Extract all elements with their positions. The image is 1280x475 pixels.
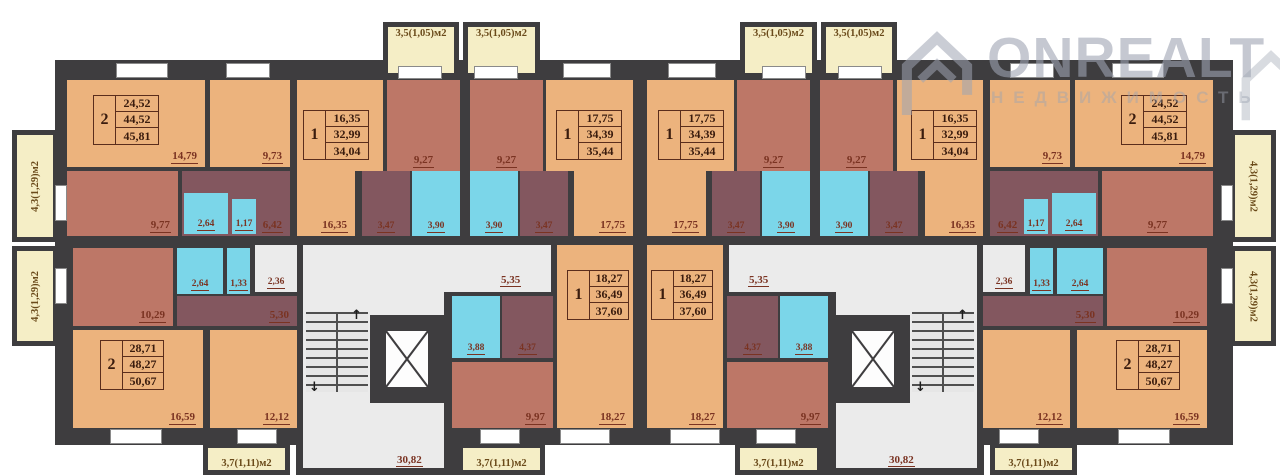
window (1118, 429, 1170, 444)
area-value: 44,52 (116, 112, 158, 128)
apt2-bottom-right-bathroom: 2,64 (1057, 248, 1103, 294)
area-value: 34,39 (579, 127, 621, 143)
room-area-label: 9,73 (1042, 150, 1063, 164)
apt2-bottom-left-bathroom: 2,64 (177, 248, 223, 294)
apt1b-left-hall: 3,47 (520, 171, 568, 236)
apt1c-left-hall: 4,37 (502, 296, 553, 358)
apartment-type: 1 (304, 111, 326, 159)
apt1a-right-kitchen: 9,27 (820, 80, 893, 171)
window (560, 429, 610, 444)
stair-divider (942, 312, 944, 392)
apt2-top-left-wc: 1,17 (232, 199, 256, 234)
apt2-top-right-kitchen: 9,77 (1102, 171, 1213, 236)
apt1c-right-kitchen: 9,97 (727, 362, 828, 428)
apt1b-left-kitchen: 9,27 (470, 80, 543, 171)
room-area-label: 9,73 (262, 150, 283, 164)
apartment-type: 1 (659, 111, 681, 159)
room-area-label: 18,27 (689, 411, 716, 425)
balcony-right-1: 4,3(1,29)м2 (1230, 130, 1276, 242)
apt1c-right-hall: 4,37 (727, 296, 778, 358)
apartment-type: 2 (101, 341, 123, 389)
apartment-type: 1 (912, 111, 934, 159)
corridor-area-label-right: 5,35 (748, 270, 769, 288)
apt2-top-left-bedroom: 9,73 (210, 80, 290, 167)
room-area-label: 3,90 (835, 221, 854, 233)
apt1b-right-bathroom: 3,90 (762, 171, 810, 236)
room-area-label: 2,64 (1071, 279, 1090, 291)
room-area-label: 9,27 (763, 154, 784, 168)
window (756, 429, 796, 444)
apt2-top-right-bedroom: 9,73 (990, 80, 1070, 167)
apartment-type: 1 (557, 111, 579, 159)
balcony-left-2: 4,3(1,29)м2 (12, 246, 58, 346)
window (668, 63, 716, 78)
area-value: 35,44 (579, 143, 621, 159)
apt1a-left-bathroom: 3,90 (412, 171, 460, 236)
area-value: 18,27 (590, 271, 628, 287)
room-area-label: 9,77 (150, 219, 171, 233)
room-area-label: 5,30 (269, 309, 290, 323)
room-area-label: 2,64 (197, 219, 216, 231)
area-value: 48,27 (1139, 357, 1179, 373)
apt2-top-right-wc: 1,17 (1024, 199, 1048, 234)
room-area-label: 3,90 (427, 221, 446, 233)
elevator-x-icon (852, 331, 894, 387)
watermark-house-icon-partial (1236, 46, 1280, 126)
staircase-right: ↓ ↑ (912, 312, 974, 392)
apt1a-right-area-table: 1 16,35 32,99 34,04 (911, 110, 977, 160)
room-area-label: 16,59 (1173, 411, 1200, 425)
area-value: 44,52 (1144, 112, 1186, 128)
lobby-area-label-left: 30,82 (396, 450, 423, 468)
room-area-label: 9,97 (800, 411, 821, 425)
balcony-bottom-4: 3,7(1,11)м2 (990, 443, 1077, 475)
apt1b-right-kitchen: 9,27 (737, 80, 810, 171)
room-area-label: 2,64 (191, 279, 210, 291)
room-area-label: 1,17 (1027, 219, 1046, 231)
area-value: 28,71 (1139, 341, 1179, 357)
room-area-label: 3,90 (485, 221, 504, 233)
apt1a-right-hall: 3,47 (870, 171, 918, 236)
balcony-door (838, 66, 882, 79)
area-value: 36,49 (590, 287, 628, 303)
room-area-label: 3,88 (795, 343, 814, 355)
area-value: 34,04 (934, 143, 976, 159)
room-area-label: 14,79 (171, 150, 198, 164)
area-value: 32,99 (326, 127, 368, 143)
room-area-label: 2,64 (1065, 219, 1084, 231)
area-value: 16,35 (326, 111, 368, 127)
window (999, 429, 1039, 444)
apt1b-right-hall: 3,47 (712, 171, 760, 236)
apt2-top-right-area-table: 2 24,52 44,52 45,81 (1121, 95, 1187, 145)
apt2-bottom-right-kitchen: 10,29 (1107, 248, 1207, 326)
balcony-bottom-3: 3,7(1,11)м2 (735, 443, 822, 475)
apartment-type: 1 (568, 271, 590, 319)
room-area-label: 4,37 (518, 343, 537, 355)
apt2-bottom-left-bedroom: 12,12 (210, 330, 297, 428)
window (1010, 63, 1054, 78)
apt1a-left-kitchen: 9,27 (387, 80, 460, 171)
apt1a-left-hall: 3,47 (362, 171, 410, 236)
room-area-label: 9,27 (846, 154, 867, 168)
balcony-left-1: 4,3(1,29)м2 (12, 130, 58, 242)
room-area-label: 3,47 (727, 221, 746, 233)
room-area-label: 12,12 (263, 411, 290, 425)
area-value: 48,27 (123, 357, 163, 373)
balcony-door (1221, 268, 1233, 304)
room-area-label: 17,75 (672, 219, 699, 233)
apt2-bottom-right-bedroom: 12,12 (983, 330, 1070, 428)
area-value: 45,81 (1144, 128, 1186, 144)
entry-vestibule-left: 2,36 (255, 245, 297, 292)
room-area-label: 18,27 (599, 411, 626, 425)
elevator-x-icon (386, 331, 428, 387)
elevator-car-left (384, 329, 430, 389)
apt1a-right-bathroom: 3,90 (820, 171, 868, 236)
apt1a-right-living-lower: 16,35 (925, 171, 983, 236)
floor-plan: 2,36 2,36 14,79 9,73 9,77 6,42 2,64 1,17… (0, 0, 1280, 475)
area-value: 50,67 (1139, 373, 1179, 389)
apt2-top-left-area-table: 2 24,52 44,52 45,81 (93, 95, 159, 145)
balcony-door (398, 66, 442, 79)
area-value: 45,81 (116, 128, 158, 144)
area-value: 34,39 (681, 127, 723, 143)
area-value: 16,35 (934, 111, 976, 127)
room-area-label: 1,17 (235, 219, 254, 231)
apt1b-left-bathroom: 3,90 (470, 171, 518, 236)
window (116, 63, 168, 78)
apt1c-right-bathroom: 3,88 (780, 296, 828, 358)
room-area-label: 4,37 (743, 343, 762, 355)
room-area-label: 6,42 (997, 219, 1018, 233)
apt2-top-right-bathroom: 2,64 (1052, 193, 1096, 234)
apt2-top-left-bathroom: 2,64 (184, 193, 228, 234)
window (563, 63, 611, 78)
room-area-label: 3,47 (535, 221, 554, 233)
apartment-type: 2 (1122, 96, 1144, 144)
apt1b-right-living-lower: 17,75 (647, 171, 706, 236)
room-area-label: 3,47 (885, 221, 904, 233)
entry-area-label: 2,36 (267, 277, 286, 289)
apt1c-right-area-table: 1 18,27 36,49 37,60 (651, 270, 713, 320)
apt2-bottom-left-kitchen: 10,29 (73, 248, 173, 326)
balcony-door (55, 185, 67, 221)
room-area-label: 3,90 (777, 221, 796, 233)
room-area-label: 9,27 (496, 154, 517, 168)
balcony-bottom-1: 3,7(1,11)м2 (203, 443, 290, 475)
area-value: 32,99 (934, 127, 976, 143)
balcony-right-2: 4,3(1,29)м2 (1230, 246, 1276, 346)
room-area-label: 16,35 (949, 219, 976, 233)
entry-area-label: 2,36 (995, 277, 1014, 289)
room-area-label: 1,33 (1032, 279, 1051, 291)
area-value: 24,52 (116, 96, 158, 112)
apartment-type: 2 (1117, 341, 1139, 389)
balcony-bottom-2: 3,7(1,11)м2 (458, 443, 545, 475)
room-area-label: 9,97 (525, 411, 546, 425)
balcony-door (762, 66, 806, 79)
window (480, 429, 520, 444)
window (226, 63, 270, 78)
elevator-car-right (850, 329, 896, 389)
balcony-door (55, 268, 67, 304)
apt1b-right-area-table: 1 17,75 34,39 35,44 (658, 110, 724, 160)
apt2-bottom-right-wc: 1,33 (1030, 248, 1053, 294)
room-area-label: 10,29 (1173, 309, 1200, 323)
room-area-label: 3,47 (377, 221, 396, 233)
room-area-label: 16,35 (321, 219, 348, 233)
room-area-label: 6,42 (262, 219, 283, 233)
balcony-door (474, 66, 518, 79)
apt2-bottom-right-hall: 5,30 (983, 296, 1103, 326)
area-value: 34,04 (326, 143, 368, 159)
stairs-up-arrow-icon: ↑ (351, 309, 362, 322)
stairs-down-arrow-icon: ↓ (915, 381, 926, 394)
area-value: 24,52 (1144, 96, 1186, 112)
room-area-label: 1,33 (229, 279, 248, 291)
stairs-up-arrow-icon: ↑ (957, 309, 968, 322)
apartment-type: 1 (652, 271, 674, 319)
window (110, 429, 162, 444)
apt1c-left-bathroom: 3,88 (452, 296, 500, 358)
room-area-label: 12,12 (1036, 411, 1063, 425)
window (1112, 63, 1164, 78)
lobby-area-label-right: 30,82 (888, 450, 915, 468)
area-value: 28,71 (123, 341, 163, 357)
window (670, 429, 720, 444)
apt2-bottom-left-area-table: 2 28,71 48,27 50,67 (100, 340, 164, 390)
area-value: 37,60 (590, 303, 628, 319)
apt1a-left-living-lower: 16,35 (297, 171, 355, 236)
stair-divider (336, 312, 338, 392)
apt1b-left-area-table: 1 17,75 34,39 35,44 (556, 110, 622, 160)
apt2-top-left-kitchen: 9,77 (67, 171, 178, 236)
entry-vestibule-right: 2,36 (983, 245, 1025, 292)
balcony-door (1221, 185, 1233, 221)
apt2-bottom-right-area-table: 2 28,71 48,27 50,67 (1116, 340, 1180, 390)
room-area-label: 14,79 (1179, 150, 1206, 164)
area-value: 17,75 (681, 111, 723, 127)
room-area-label: 9,27 (413, 154, 434, 168)
area-value: 37,60 (674, 303, 712, 319)
apartment-type: 2 (94, 96, 116, 144)
room-area-label: 5,30 (1075, 309, 1096, 323)
stairs-down-arrow-icon: ↓ (309, 381, 320, 394)
corridor-area-label-left: 5,35 (500, 270, 521, 288)
room-area-label: 3,88 (467, 343, 486, 355)
staircase-left: ↓ ↑ (306, 312, 368, 392)
apt1c-left-kitchen: 9,97 (452, 362, 553, 428)
room-area-label: 17,75 (599, 219, 626, 233)
apt1a-left-area-table: 1 16,35 32,99 34,04 (303, 110, 369, 160)
room-area-label: 16,59 (169, 411, 196, 425)
area-value: 18,27 (674, 271, 712, 287)
apt2-bottom-left-wc: 1,33 (227, 248, 250, 294)
area-value: 50,67 (123, 373, 163, 389)
apt2-bottom-left-hall: 5,30 (177, 296, 297, 326)
window (237, 429, 277, 444)
apt1b-left-living-lower: 17,75 (574, 171, 633, 236)
area-value: 35,44 (681, 143, 723, 159)
area-value: 17,75 (579, 111, 621, 127)
room-area-label: 10,29 (139, 309, 166, 323)
area-value: 36,49 (674, 287, 712, 303)
room-area-label: 9,77 (1147, 219, 1168, 233)
apt1c-left-area-table: 1 18,27 36,49 37,60 (567, 270, 629, 320)
